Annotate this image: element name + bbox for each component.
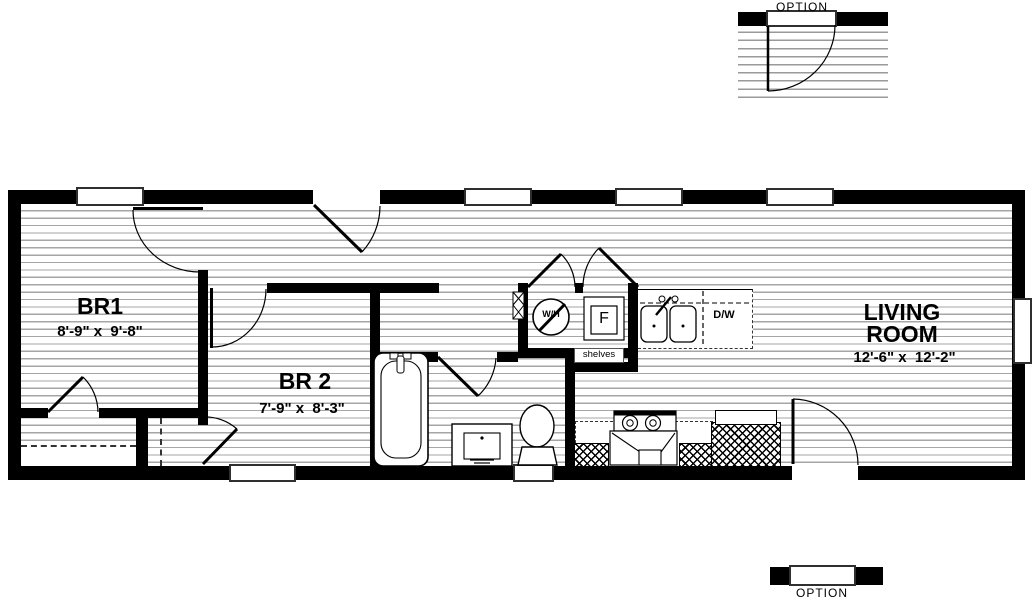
bath-door-arc [478,358,496,396]
furnace-label: F [584,310,624,328]
br1-closet-door-arc [83,377,98,412]
br2-closet-door-panel [203,429,237,464]
living-room-label-line1: LIVING [832,301,972,323]
rear-door-arc [362,206,380,252]
floor-plan-canvas: OPTION OPTION [0,0,1033,602]
toilet [518,405,557,465]
dishwasher-label: D/W [704,309,744,321]
shelves-label: shelves [574,348,624,363]
br1-door-arc [133,210,200,272]
bath-door-panel [438,357,478,396]
br2-closet-door-arc [203,417,237,429]
option-door-arc [768,25,835,91]
br1-closet-door-panel [48,377,83,412]
water-heater-label: W/H [534,309,568,319]
utility-left-door-panel [528,254,561,287]
door-swing-arcs [83,25,858,465]
front-door-arc [793,399,858,465]
range [610,411,677,465]
option-door-label: OPTION [752,0,852,14]
vanity-sink [452,424,512,466]
vent-chase-marker [513,292,524,319]
br1-label: BR1 [40,294,160,318]
br1-dims: 8'-9" x 9'-8" [25,323,175,340]
utility-right-door-arc [583,248,599,287]
utility-left-door-arc [561,254,575,287]
living-room-label-line2: ROOM [832,323,972,345]
utility-right-door-panel [599,248,638,287]
living-room-dims: 12'-6" x 12'-2" [832,349,977,366]
rear-door-panel [314,205,362,252]
br2-dims: 7'-9" x 8'-3" [227,400,377,417]
br2-door-arc [212,289,266,347]
br2-label: BR 2 [245,369,365,393]
bathtub [374,353,428,466]
option-window-label: OPTION [772,586,872,600]
